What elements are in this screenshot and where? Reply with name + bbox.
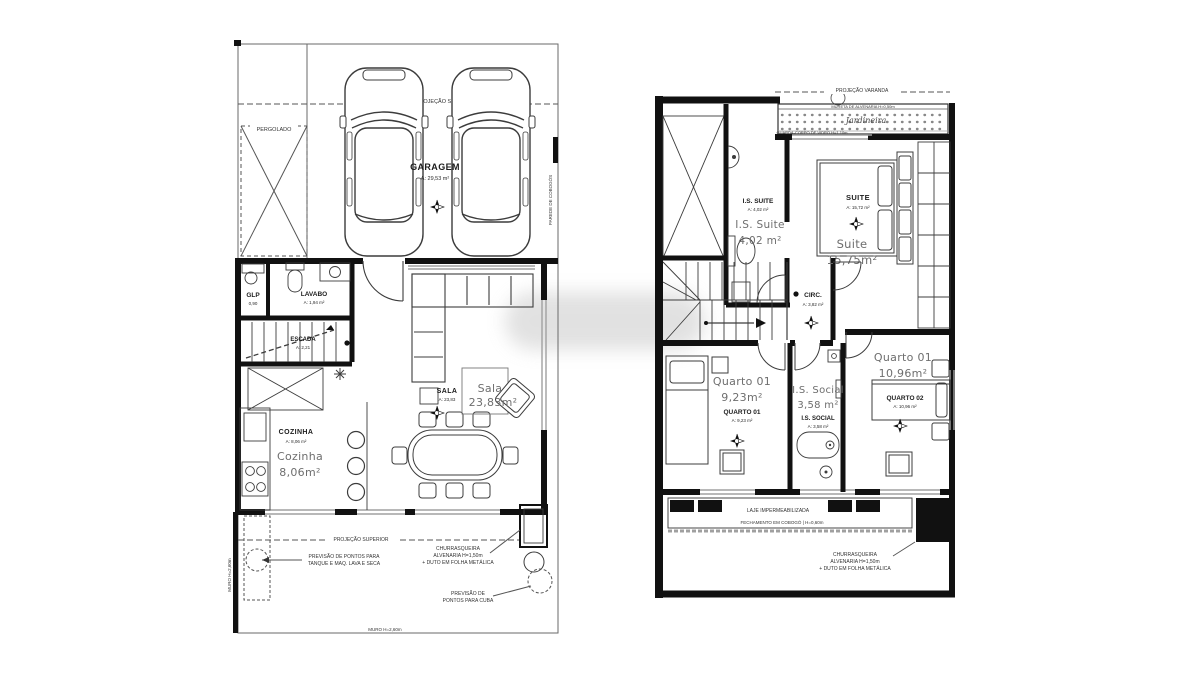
- wall-segment: [553, 137, 558, 163]
- cozinha-overlay-area: 8,06m²: [279, 466, 320, 479]
- level-marker-icon: [430, 200, 444, 214]
- garagem-label: GARAGEM: [410, 162, 460, 172]
- level-marker-icon: [730, 434, 744, 448]
- nota-churrasqueira2-line1: CHURRASQUEIRA: [833, 552, 878, 558]
- upper-floor-plan: PROJEÇÃO VARANDA MURETA DE ALVENARIA H=0…: [655, 86, 955, 598]
- quarto01-overlay-area: 9,23m²: [721, 391, 762, 404]
- suite-overlay-area: 15,75m²: [827, 253, 878, 267]
- quarto02-area: A: 10,96 m²: [893, 404, 917, 409]
- parede-cobogos-label: PAREDE DE COBOGÓS: [547, 175, 553, 225]
- quarto01-label: QUARTO 01: [723, 409, 760, 416]
- nota-churrasqueira-line3: + DUTO EM FOLHA METÁLICA: [422, 559, 494, 566]
- suite-label: SUITE: [846, 193, 870, 202]
- sala-overlay-name: Sala: [478, 382, 503, 395]
- backyard-annotations: [238, 505, 552, 600]
- glp-area: 0,90: [249, 301, 258, 306]
- nota-tanque-line1: PREVISÃO DE PONTOS PARA: [309, 553, 381, 560]
- is-suite-label: I.S. SUITE: [743, 198, 774, 205]
- suite-overlay-name: Suite: [837, 237, 868, 251]
- floor-plan-sheet: PROJEÇÃO SUPERIOR PERGOLADO GARAGEM A: 2…: [0, 0, 1200, 675]
- shaft: [663, 116, 724, 258]
- glp-label: GLP: [246, 292, 260, 299]
- nota-tanque-line2: TANQUE E MAQ. LAVA E SECA: [308, 561, 381, 567]
- nota-churrasqueira2-line2: ALVENARIA H=1,50m: [830, 559, 879, 565]
- is-suite-overlay-area: 4,02 m²: [738, 235, 781, 247]
- jardineira-script-label: Jardineira: [844, 116, 887, 125]
- level-marker-icon: [430, 406, 444, 420]
- fechamento-label: FECHAMENTO EM COBOGÓ | H=0,60m: [741, 519, 824, 525]
- floor-plan-drawing: PROJEÇÃO SUPERIOR PERGOLADO GARAGEM A: 2…: [0, 0, 1200, 675]
- nota-cuba-line1: PREVISÃO DE: [451, 590, 486, 597]
- quarto02-overlay-area: 10,96m²: [879, 367, 928, 380]
- escada-label: ESCADA: [290, 337, 316, 343]
- quarto02-label: QUARTO 02: [886, 395, 923, 402]
- circ-label: CIRC.: [804, 292, 822, 299]
- sala-area: A: 23,83: [439, 397, 456, 402]
- quarto01-area: A: 9,23 m²: [732, 418, 753, 423]
- side-table: [420, 388, 438, 404]
- suite-top-wall: [775, 135, 952, 139]
- ground-floor-plan: PROJEÇÃO SUPERIOR PERGOLADO GARAGEM A: 2…: [227, 40, 558, 633]
- quarto01-overlay-name: Quarto 01: [713, 375, 771, 388]
- sofa: [412, 274, 533, 382]
- sala-overlay-area: 23,83m²: [469, 396, 518, 409]
- cozinha-overlay-name: Cozinha: [277, 450, 323, 463]
- entry-door: [363, 261, 403, 301]
- level-marker-icon: [849, 217, 863, 231]
- nota-churrasqueira-line1: CHURRASQUEIRA: [436, 546, 481, 552]
- jardineira-mureta-label: MURETA DE ALVENARIA H=0,50m: [831, 104, 895, 109]
- sala-label: SALA: [437, 388, 458, 395]
- escada-area: A: 2,21: [296, 345, 311, 350]
- quarto02-overlay-name: Quarto 01: [874, 351, 932, 364]
- terrace-strip: [668, 498, 954, 556]
- is-suite-area: A: 4,02 m²: [748, 207, 769, 212]
- lavabo-area: A: 1,94 m²: [304, 300, 325, 305]
- muro-bottom-label: MURO H=2,60m: [368, 627, 402, 632]
- projecao-superior-backyard-label: PROJEÇÃO SUPERIOR: [333, 536, 388, 543]
- is-social-area: A: 3,58 m²: [808, 424, 829, 429]
- suite-wardrobe: [918, 142, 950, 328]
- circ-area: A: 3,82 m²: [803, 302, 824, 307]
- glp-closet: [242, 264, 264, 284]
- garagem-area: A: 29,53 m²: [421, 176, 450, 182]
- side-wall: [233, 512, 238, 633]
- is-social-overlay-area: 3,58 m²: [797, 400, 838, 411]
- level-marker-icon: [893, 419, 907, 433]
- dining-table: [392, 412, 518, 498]
- car-2: [447, 68, 535, 256]
- pergolado-label: PERGOLADO: [257, 127, 293, 133]
- cozinha-label: COZINHA: [279, 429, 314, 436]
- is-social-overlay-name: I.S. Social: [792, 385, 844, 396]
- understair-hatch: [248, 368, 346, 410]
- laje-label: LAJE IMPERMEABILIZADA: [747, 508, 810, 514]
- varanda-jardineira: [775, 91, 950, 134]
- muro-left-label: MURO H=2,60m: [227, 558, 232, 592]
- nota-churrasqueira-line2: ALVENARIA H=1,50m: [433, 553, 482, 559]
- level-marker-icon: [804, 316, 818, 330]
- suite-area: A: 15,72 m²: [846, 205, 870, 210]
- is-suite-overlay-name: I.S. Suite: [735, 219, 785, 231]
- lavabo-fixtures: [286, 263, 350, 292]
- projecao-varanda-label: PROJEÇÃO VARANDA: [836, 87, 889, 94]
- circ-dot: [793, 291, 798, 296]
- cozinha-area: A: 8,06 m²: [286, 439, 307, 444]
- corner-mark: [234, 40, 241, 46]
- nota-cuba-line2: PONTOS PARA CUBA: [443, 598, 494, 604]
- lavabo-label: LAVABO: [301, 291, 327, 298]
- nota-churrasqueira2-line3: + DUTO EM FOLHA METÁLICA: [819, 565, 891, 572]
- is-social-label: I.S. SOCIAL: [801, 416, 835, 422]
